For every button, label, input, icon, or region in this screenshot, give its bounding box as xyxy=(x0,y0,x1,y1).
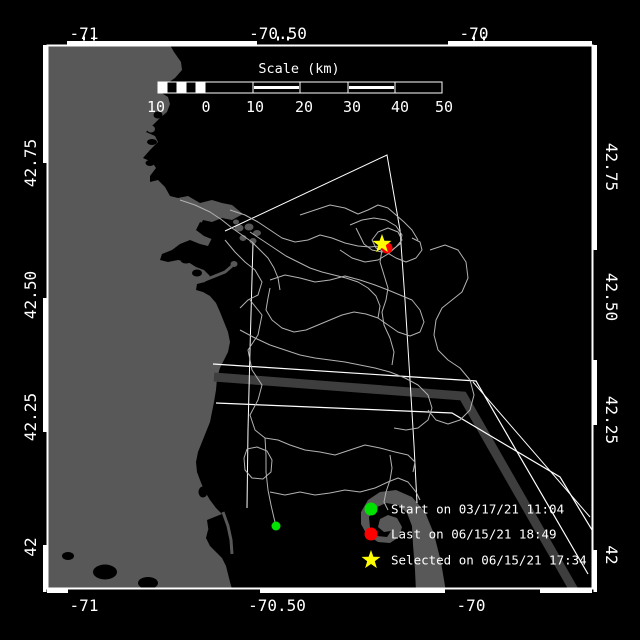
scale-bar-segment xyxy=(300,82,348,93)
border-segment-bottom xyxy=(540,590,592,594)
scale-bar-segment xyxy=(167,82,177,93)
scale-bar-label: 20 xyxy=(295,98,313,116)
water-inlet xyxy=(192,270,202,277)
lat-label-right: 42.75 xyxy=(602,143,621,191)
border-segment-left xyxy=(43,432,47,545)
lon-label-bottom: -71 xyxy=(70,596,99,615)
lat-label-right: 42 xyxy=(602,545,621,564)
island xyxy=(245,224,254,231)
water-inlet xyxy=(62,552,74,560)
lon-label-bottom: -70 xyxy=(457,596,486,615)
water-inlet xyxy=(181,257,192,264)
border-segment-left xyxy=(43,163,47,298)
border-segment-left xyxy=(43,45,47,163)
border-segment-right xyxy=(594,360,598,425)
lat-label-right: 42.25 xyxy=(602,396,621,444)
legend-label: Selected on 06/15/21 17:34 xyxy=(391,553,587,568)
lat-label-right: 42.50 xyxy=(602,273,621,321)
scale-bar-segment xyxy=(158,82,167,93)
last-legend-icon xyxy=(365,528,378,541)
scale-bar-label: 10 xyxy=(147,98,165,116)
scale-bar-segment xyxy=(196,82,205,93)
border-segment-right xyxy=(594,550,598,592)
water-inlet xyxy=(138,577,158,589)
lon-label-top: -71 xyxy=(70,24,99,43)
lon-label-top: -70.50 xyxy=(249,24,307,43)
legend: Start on 03/17/21 11:04Last on 06/15/21 … xyxy=(362,502,587,569)
lon-label-bottom: -70.50 xyxy=(248,596,306,615)
scale-bar-segment xyxy=(186,82,196,93)
island xyxy=(147,126,155,133)
legend-item-last[interactable]: Last on 06/15/21 18:49 xyxy=(365,527,557,542)
lat-label-left: 42.75 xyxy=(21,139,40,187)
scale-bar-segment xyxy=(395,82,442,93)
scale-bar-label: 0 xyxy=(201,98,210,116)
border-segment-bottom xyxy=(260,590,445,594)
island xyxy=(233,220,239,225)
legend-item-start[interactable]: Start on 03/17/21 11:04 xyxy=(365,502,565,517)
scale-bar-label: 30 xyxy=(343,98,361,116)
border-segment-left xyxy=(43,545,47,592)
water-inlet xyxy=(199,487,208,498)
scale-bar-label: 10 xyxy=(246,98,264,116)
border-segment-right xyxy=(594,250,598,360)
border-segment-right xyxy=(594,45,598,250)
water-inlet xyxy=(93,565,117,580)
map-figure: Scale (km)1001020304050Start on 03/17/21… xyxy=(0,0,640,640)
scale-bar-stripe xyxy=(254,86,299,89)
start-marker[interactable] xyxy=(272,522,281,531)
scale-bar-segment xyxy=(177,82,186,93)
border-segment-top xyxy=(47,41,67,45)
legend-label: Last on 06/15/21 18:49 xyxy=(391,527,557,542)
legend-item-selected[interactable]: Selected on 06/15/21 17:34 xyxy=(362,550,587,568)
track-map-svg: Scale (km)1001020304050Start on 03/17/21… xyxy=(0,0,640,640)
water-inlet xyxy=(147,139,157,145)
border-segment-bottom xyxy=(68,590,260,594)
scale-bar-title: Scale (km) xyxy=(258,61,339,77)
border-segment-left xyxy=(43,298,47,432)
lon-label-top: -70 xyxy=(460,24,489,43)
border-segment-bottom xyxy=(445,590,540,594)
border-segment-bottom xyxy=(47,590,68,594)
start-legend-icon xyxy=(365,503,378,516)
lat-label-left: 42 xyxy=(21,537,40,556)
legend-label: Start on 03/17/21 11:04 xyxy=(391,502,564,517)
scale-bar-stripe xyxy=(349,86,394,89)
lat-label-left: 42.25 xyxy=(21,393,40,441)
lat-label-left: 42.50 xyxy=(21,271,40,319)
scale-bar-label: 50 xyxy=(435,98,453,116)
scale-bar-segment xyxy=(205,82,253,93)
scale-bar-label: 40 xyxy=(391,98,409,116)
water-inlet xyxy=(146,160,155,166)
border-segment-right xyxy=(594,425,598,550)
